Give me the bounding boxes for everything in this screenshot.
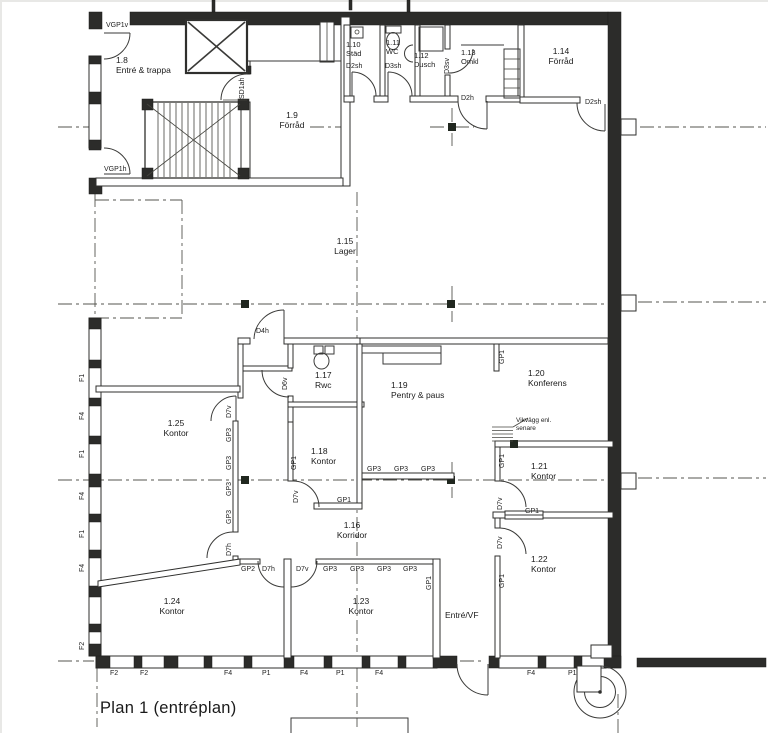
partition-label-gp1: GP1 [499,454,507,468]
room-label-pentry: 1.19 Pentry & paus [391,381,444,400]
shower-tray [419,27,443,51]
room-label-dusch: 1.12 Dusch [414,52,435,69]
window-label-f4: F4 [300,670,308,678]
window-label-f4: F4 [79,412,87,420]
window-label-f4: F4 [224,670,232,678]
grid-node [241,300,249,308]
room-label-kontor-121: 1.21 Kontor [531,462,556,481]
window-label-p1: P1 [568,670,577,678]
corner-column [591,645,612,658]
room-label-kontor-123: 1.23 Kontor [338,597,384,616]
door-arc-entrance [457,664,488,695]
room-label-kontor-124: 1.24 Kontor [146,597,198,616]
partition-label-gp3: GP3 [226,456,234,470]
door-label-d2sh: D2sh [585,99,601,107]
door-arc-d7v-123 [291,561,317,587]
facade-column [621,119,636,135]
partition-label-gp3: GP3 [226,428,234,442]
room-label-kontor-122: 1.22 Kontor [531,555,556,574]
partition-label-gp1: GP1 [499,350,507,364]
partition-label-gp1: GP1 [337,497,351,505]
door-label-d2sh: D2sh [346,63,362,71]
partition-label-gp3: GP3 [226,510,234,524]
diagonal-wall [98,559,240,587]
partition-label-gp1: GP1 [499,574,507,588]
window-label-f1: F1 [79,374,87,382]
room-label-wc: 1.11 WC [386,39,400,56]
door-arc-d2h [458,100,487,129]
door-arc-d3sh [388,72,412,96]
partition-label-gp2: GP2 [241,566,255,574]
door-label-d2h: D2h [461,95,474,103]
partition-label-gp3: GP3 [323,566,337,574]
window-label-p1: P1 [262,670,271,678]
door-label-vgp1h: VGP1h [104,166,127,174]
window-label-f2: F2 [79,642,87,650]
room-label-entre-trappa: 1.8 Entré & trappa [116,56,171,75]
partition-label-gp1: GP1 [291,456,299,470]
staircase [142,99,250,179]
vikvagg-annotation: Vikvägg enl. senare [516,417,551,432]
window-label-f4: F4 [79,492,87,500]
room-label-kontor-125: 1.25 Kontor [150,419,202,438]
grid-node [447,300,455,308]
partition-label-gp3: GP3 [226,482,234,496]
rwc-toilet-bowl [314,353,329,369]
door-label-d7v: D7v [497,537,505,549]
room-label-konferens: 1.20 Konferens [528,369,567,388]
elevator [186,20,247,73]
grid-node [241,476,249,484]
window-label-f2: F2 [110,670,118,678]
room-label-kontor-118: 1.18 Kontor [311,447,336,466]
drawing-title: Plan 1 (entréplan) [100,699,237,718]
door-label-sd1ah: SD1ah [239,78,247,99]
dimension-tick [212,0,215,12]
dimension-tick [349,0,352,10]
door-arc-d2sh [352,72,376,96]
door-arc-d2sh-114 [577,103,605,131]
toilet-tank [386,26,401,33]
floor-plan-sheet: 1.8 Entré & trappa 1.9 Förråd 1.10 Städ … [0,0,768,733]
door-label-d3sv: D3sv [444,58,452,74]
window-label-f1: F1 [79,530,87,538]
grid-node [448,123,456,131]
partition-label-gp3: GP3 [350,566,364,574]
window-label-p1: P1 [336,670,345,678]
room-label-omkl: 1.13 Omkl [461,49,479,66]
window-label-f4: F4 [527,670,535,678]
door-label-d7h: D7h [226,543,234,556]
facade-column [621,295,636,311]
partition-label-gp3: GP3 [403,566,417,574]
partition-label-gp1: GP1 [426,576,434,590]
wash-basin [405,45,414,62]
window-label-f1: F1 [79,450,87,458]
facade-column [621,473,636,489]
window-label-f2: F2 [140,670,148,678]
site-wall [637,658,766,667]
room-label-forrad-19: 1.9 Förråd [266,111,318,130]
door-label-d7v: D7v [296,566,308,574]
door-label-d3sh: D3sh [385,63,401,71]
partition-label-gp3: GP3 [421,466,435,474]
door-label-d7v: D7v [293,491,301,503]
door-label-d7v: D7v [226,406,234,418]
window-label-f4: F4 [375,670,383,678]
room-label-stad: 1.10 Städ [346,41,361,58]
door-label-d4h: D4h [256,328,269,336]
door-label-d7h: D7h [262,566,275,574]
window-label-f4: F4 [79,564,87,572]
room-label-korridor: 1.16 Korridor [324,521,380,540]
room-label-entre-vf: Entré/VF [445,611,479,621]
door-label-d6v: D6v [282,378,290,390]
partition-label-gp3: GP3 [377,566,391,574]
cleaning-sink [351,27,363,38]
pantry-counter [362,346,441,353]
partition-label-gp1: GP1 [525,508,539,516]
floor-plan-drawing [0,0,768,733]
title-block-box [291,718,408,733]
door-label-vgp1v: VGP1v [106,22,128,30]
dimension-tick [407,0,410,12]
room-label-forrad-114: 1.14 Förråd [538,47,584,66]
pantry-counter [383,353,441,364]
door-label-d7v: D7v [497,498,505,510]
room-label-lager: 1.15 Lager [318,237,372,256]
room-label-rwc: 1.17 Rwc [315,371,332,390]
entrance-circle-feature [574,666,626,718]
partition-label-gp3: GP3 [367,466,381,474]
partition-label-gp3: GP3 [394,466,408,474]
door-arc-d7h-124 [258,561,284,587]
rwc-cistern [325,346,334,354]
dashed-outline [95,193,182,320]
